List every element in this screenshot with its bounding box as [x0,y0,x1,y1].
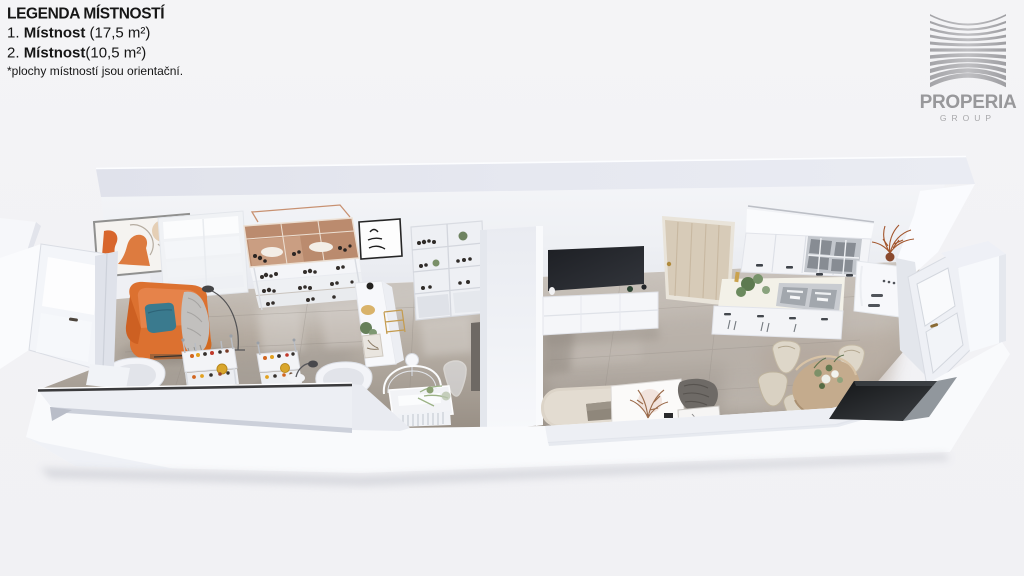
svg-text:2. Místnost(10,5 m²): 2. Místnost(10,5 m²) [7,45,146,62]
svg-text:1. Místnost (17,5 m²): 1. Místnost (17,5 m²) [7,25,150,42]
svg-text:GROUP: GROUP [940,113,996,123]
svg-text:*plochy místností jsou orienta: *plochy místností jsou orientační. [7,64,183,78]
svg-text:LEGENDA MÍSTNOSTÍ: LEGENDA MÍSTNOSTÍ [7,6,165,23]
svg-text:PROPERIA: PROPERIA [920,92,1017,113]
